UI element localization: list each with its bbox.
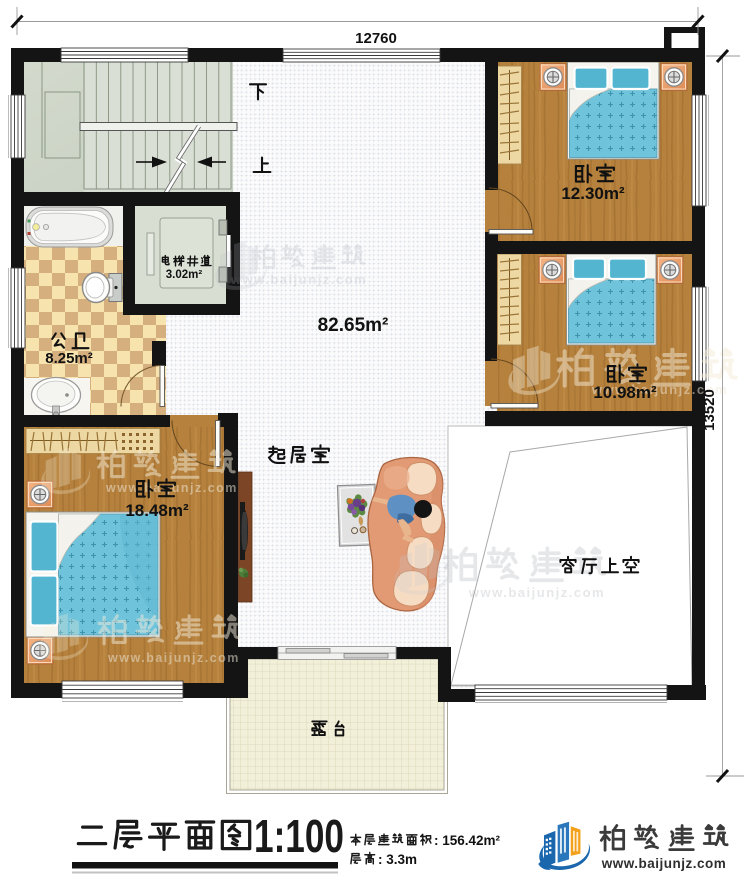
svg-text:: 156.42m²: : 156.42m² <box>434 833 501 848</box>
svg-text:www.baijunjz.com: www.baijunjz.com <box>107 651 240 665</box>
svg-text:: 3.3m: : 3.3m <box>378 852 417 867</box>
svg-text:18.48m²: 18.48m² <box>125 501 189 520</box>
svg-text:10.98m²: 10.98m² <box>593 383 657 402</box>
svg-text:www.baijunjz.com: www.baijunjz.com <box>601 856 727 871</box>
svg-text:3.02m²: 3.02m² <box>166 269 203 281</box>
svg-text:www.baijunjz.com: www.baijunjz.com <box>468 585 605 600</box>
svg-text:82.65m²: 82.65m² <box>318 315 389 336</box>
svg-text:12760: 12760 <box>355 30 397 47</box>
svg-text:8.25m²: 8.25m² <box>45 350 93 367</box>
svg-text:12.30m²: 12.30m² <box>561 184 625 203</box>
svg-text:13520: 13520 <box>701 389 718 431</box>
svg-text:1:100: 1:100 <box>254 810 344 862</box>
svg-text:www.baijunjz.com: www.baijunjz.com <box>230 272 367 287</box>
